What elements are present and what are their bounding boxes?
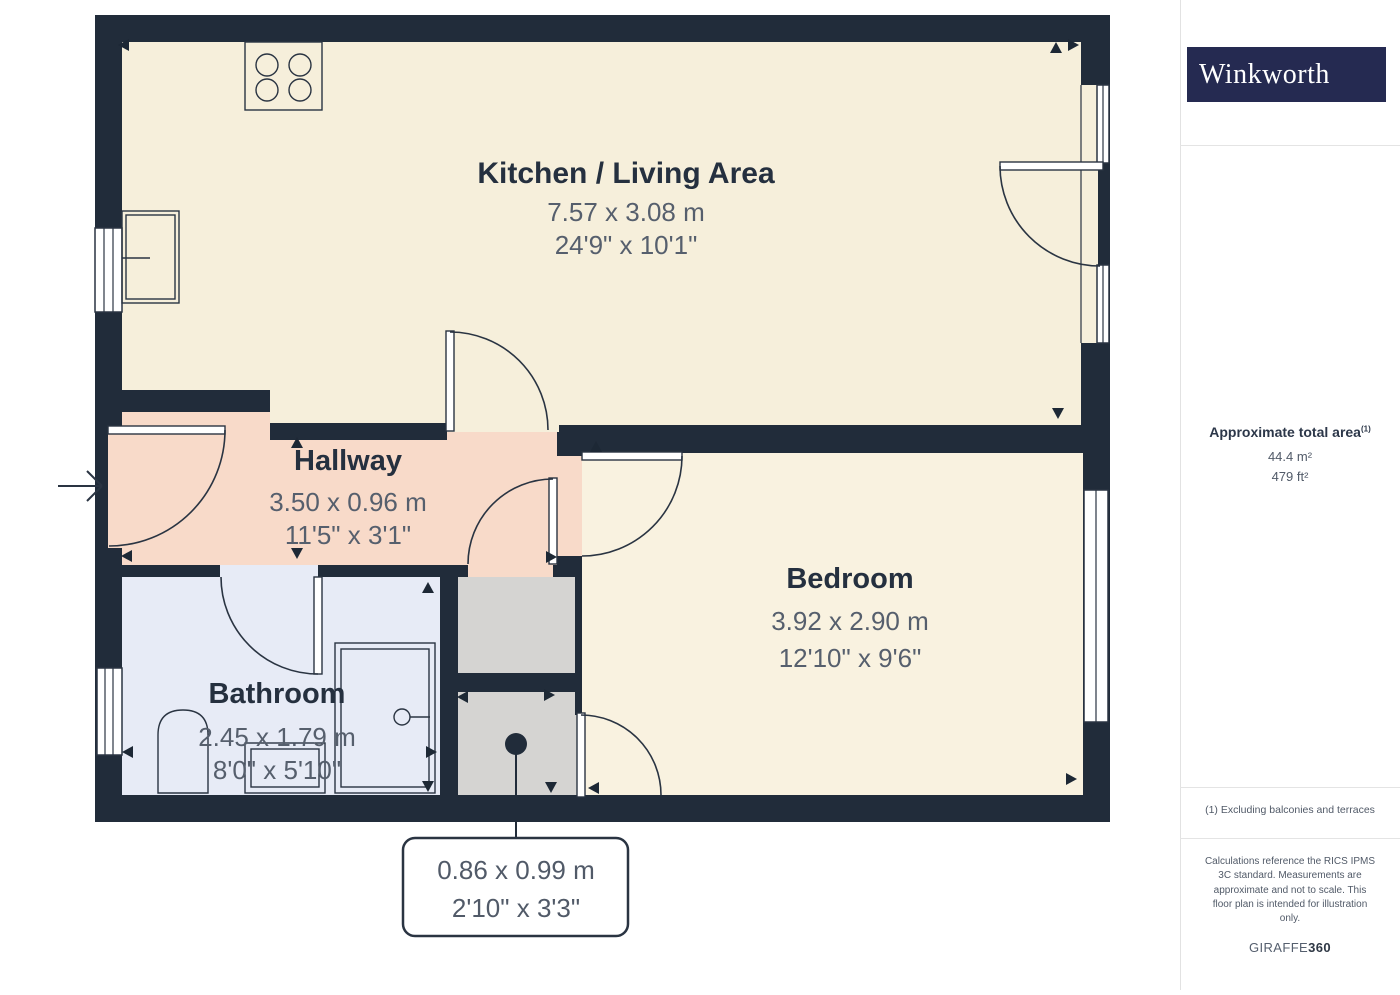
sidebar-left-border [1180, 0, 1181, 990]
floor-plan: 0.86 x 0.99 m 2'10" x 3'3" Kitchen / Liv… [0, 0, 1180, 990]
giraffe360-credit-brand: GIRAFFE [1249, 940, 1308, 955]
disclaimer-text: Calculations reference the RICS IPMS 3C … [1204, 855, 1376, 926]
kitchen-imperial-label: 24'9" x 10'1" [555, 230, 698, 260]
info-sidebar: Winkworth Approximate total area(1) 44.4… [1180, 0, 1400, 990]
kitchen-name-label: Kitchen / Living Area [477, 157, 775, 190]
area-footnote: (1) Excluding balconies and terraces [1180, 804, 1400, 816]
divider-footnote-top [1180, 787, 1400, 788]
total-area-title: Approximate total area(1) [1180, 424, 1400, 440]
store-marker-dot [505, 733, 527, 755]
window-bedroom-right [1084, 490, 1108, 722]
total-area-footnote-marker: (1) [1361, 424, 1371, 433]
hallway-metric-label: 3.50 x 0.96 m [269, 487, 427, 517]
giraffe360-credit: GIRAFFE360 [1180, 940, 1400, 955]
store-metric-label: 0.86 x 0.99 m [437, 855, 595, 885]
winkworth-logo-text: Winkworth [1199, 59, 1330, 90]
window-kitchen-right-upper [1097, 85, 1109, 163]
total-area-block: Approximate total area(1) 44.4 m² 479 ft… [1180, 424, 1400, 484]
giraffe360-credit-suffix: 360 [1308, 940, 1331, 955]
bathroom-name-label: Bathroom [209, 678, 346, 710]
store-imperial-label: 2'10" x 3'3" [452, 893, 580, 923]
room-bedroom-labels: Bedroom 3.92 x 2.90 m 12'10" x 9'6" [771, 563, 929, 673]
divider-top [1180, 145, 1400, 146]
bathroom-door-recess [220, 565, 318, 577]
bedroom-door-recess [557, 456, 582, 556]
kitchen-metric-label: 7.57 x 3.08 m [547, 197, 705, 227]
bathroom-metric-label: 2.45 x 1.79 m [198, 722, 356, 752]
hallway-name-label: Hallway [294, 445, 402, 477]
divider-footnote-bottom [1180, 838, 1400, 839]
bedroom-imperial-label: 12'10" x 9'6" [779, 643, 922, 673]
room-bathroom-labels: Bathroom 2.45 x 1.79 m 8'0" x 5'10" [198, 678, 356, 785]
bedroom-name-label: Bedroom [786, 563, 913, 595]
bathroom-imperial-label: 8'0" x 5'10" [213, 755, 341, 785]
winkworth-logo: Winkworth [1187, 47, 1386, 102]
hallway-imperial-label: 11'5" x 3'1" [285, 520, 411, 550]
window-kitchen-left [95, 228, 122, 312]
total-area-title-text: Approximate total area [1209, 424, 1361, 440]
balcony-recess-floor [1081, 85, 1098, 343]
closet1-floor [458, 577, 575, 673]
total-area-metric: 44.4 m² [1180, 449, 1400, 464]
bedroom-metric-label: 3.92 x 2.90 m [771, 606, 929, 636]
window-kitchen-right-lower [1097, 265, 1109, 343]
floor-plan-region: 0.86 x 0.99 m 2'10" x 3'3" Kitchen / Liv… [0, 0, 1180, 990]
total-area-imperial: 479 ft² [1180, 469, 1400, 484]
front-door-recess [108, 426, 122, 548]
window-bathroom-left [97, 668, 122, 755]
closet-door-recess [468, 565, 553, 577]
